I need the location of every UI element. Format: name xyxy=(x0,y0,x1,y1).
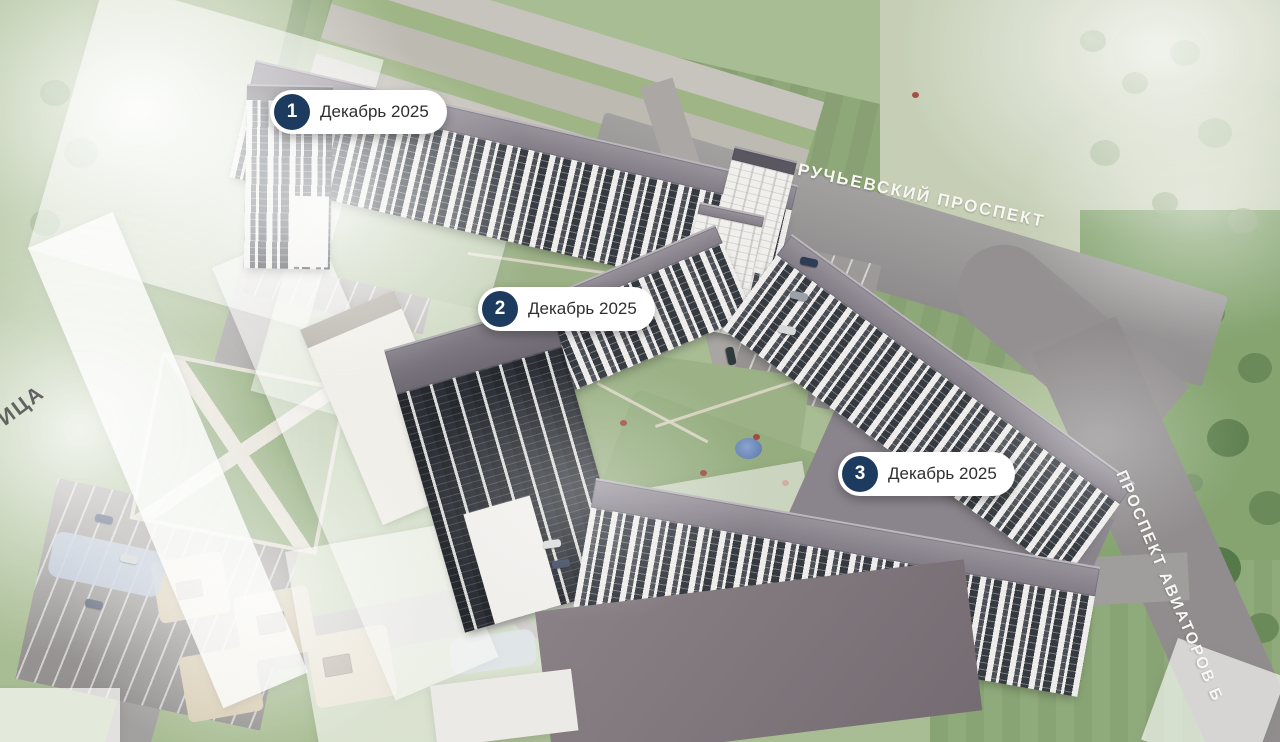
marker-2-number-badge: 2 xyxy=(482,291,518,327)
playground-dome xyxy=(735,438,762,459)
marker-building-2[interactable]: 2 Декабрь 2025 xyxy=(478,287,655,331)
marker-3-date-label: Декабрь 2025 xyxy=(888,464,1011,484)
shrub xyxy=(912,92,919,98)
marker-3-number-badge: 3 xyxy=(842,456,878,492)
shrub xyxy=(700,470,707,476)
tree-cluster-left xyxy=(40,80,70,106)
playground-red-element xyxy=(753,434,760,440)
building-2-tower-white-gable xyxy=(463,495,561,624)
masterplan-map: РУЧЬЕВСКИЙ ПРОСПЕКТ ПРОСПЕКТ АВИАТОРОВ Б… xyxy=(0,0,1280,742)
tree-cluster-topright xyxy=(1080,30,1106,52)
marker-building-1[interactable]: 1 Декабрь 2025 xyxy=(270,90,447,134)
street-label-ulitsa-fragment: ИЦА xyxy=(0,381,50,431)
marker-1-number-badge: 1 xyxy=(274,94,310,130)
shrub xyxy=(620,420,627,426)
marker-2-date-label: Декабрь 2025 xyxy=(528,299,651,319)
building-1-tower-white-wall xyxy=(290,196,329,267)
faded-building-corner xyxy=(0,688,120,742)
marker-building-3[interactable]: 3 Декабрь 2025 xyxy=(838,452,1015,496)
marker-1-date-label: Декабрь 2025 xyxy=(320,102,443,122)
